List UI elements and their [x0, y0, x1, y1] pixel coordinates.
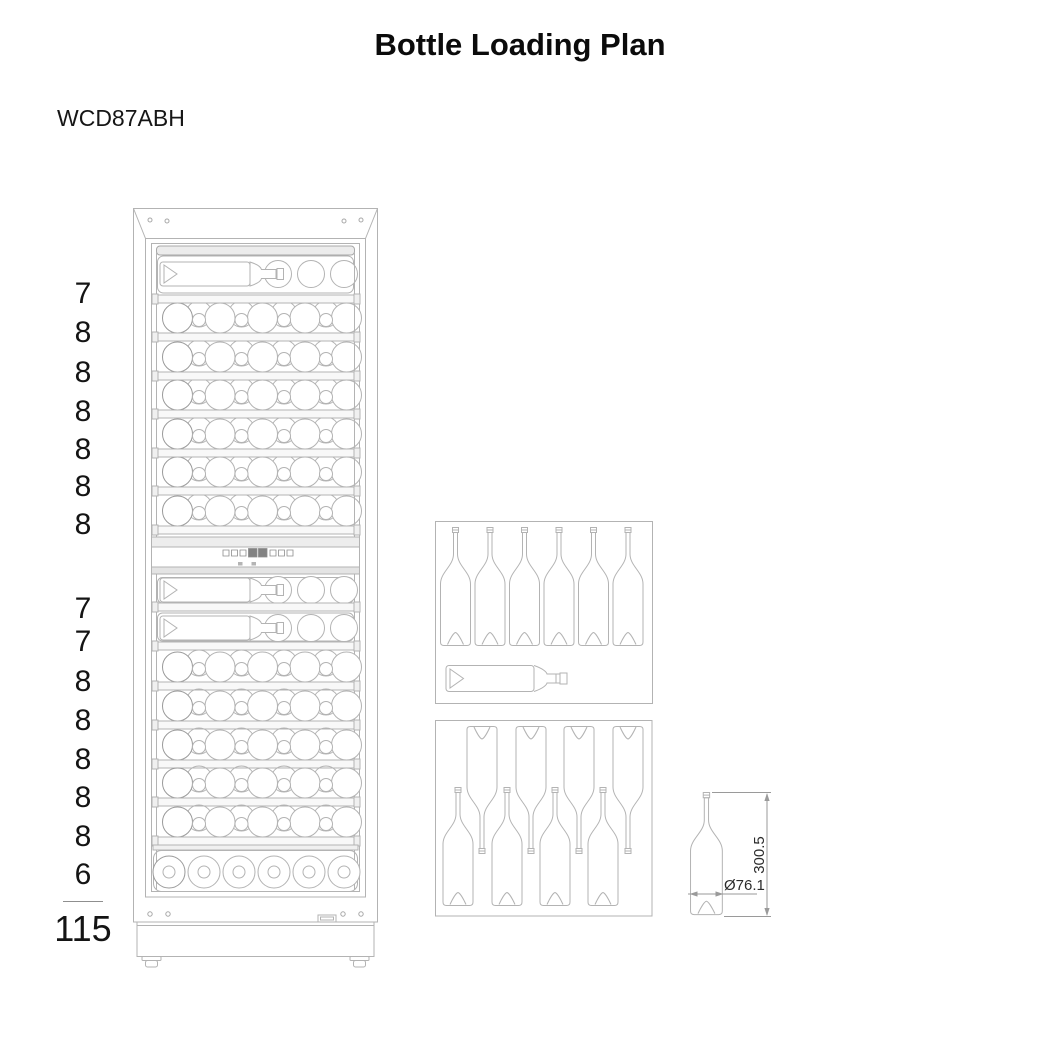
wine-cabinet-drawing [134, 209, 378, 968]
leveling-feet [142, 957, 369, 968]
bottle-loading-plan-page: { "page": { "title": "Bottle Loading Pla… [0, 0, 1040, 1040]
alternating-bottles-diagram [436, 721, 653, 917]
dimension-lines [688, 793, 771, 917]
loading-plan-drawing [0, 0, 1040, 1040]
bottle-dimension-drawing [688, 793, 771, 917]
interior-light-band [157, 246, 355, 255]
temperature-display [249, 549, 258, 558]
control-panel [152, 537, 360, 574]
standing-bottles-diagram [436, 522, 653, 704]
temperature-display-2 [259, 549, 268, 558]
